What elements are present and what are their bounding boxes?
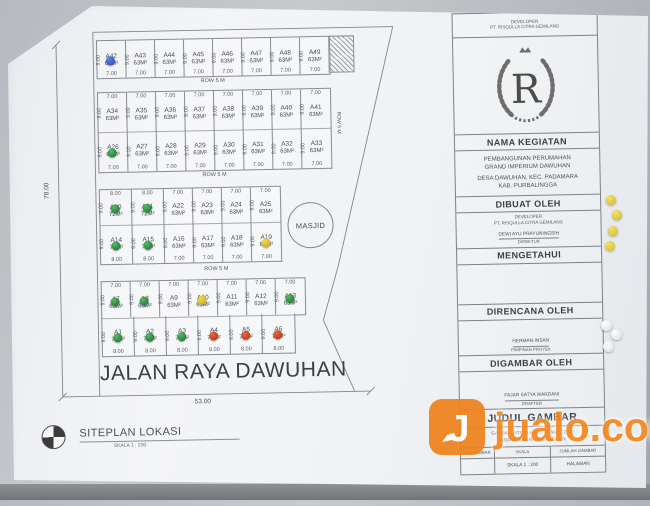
lot-marker-dot-yellow	[261, 238, 270, 247]
lot-a8: 9.007.00A863M²	[131, 281, 161, 318]
lot-id: A36	[156, 108, 184, 115]
legend-block: SITEPLAN LOKASI SKALA 1 : 200	[41, 422, 239, 451]
lot-area: 63M²	[244, 149, 272, 156]
lot-a41: 9.007.00A4163M²	[301, 89, 331, 129]
lot-a14: 9.008.00A1472M²	[100, 224, 133, 265]
lot-area: 63M²	[272, 113, 300, 120]
table-value-no-lembar	[461, 459, 495, 475]
lot-area: 63M²	[128, 151, 156, 158]
lot-width-dim: 8.00	[209, 347, 220, 353]
lot-id: A41	[301, 105, 330, 112]
lot-row-a42-a49: 9.007.00A4263M²9.007.00A4363M²9.007.00A4…	[96, 36, 331, 79]
lokasi-text: DESA DAWUHAN, KEC. PADAMARAKAB. PURBALIN…	[477, 173, 578, 191]
lot-width-dim: 7.00	[311, 161, 322, 167]
lot-width-dim: 7.00	[226, 281, 237, 287]
lot-width-dim: 7.00	[172, 190, 183, 196]
legend-title: SITEPLAN LOKASI	[79, 425, 239, 440]
lot-area: 63M²	[273, 148, 301, 155]
lot-marker-dot-green	[110, 297, 119, 306]
lot-a24: 9.007.00A2463M²	[222, 187, 252, 223]
lot-id: A34	[98, 109, 126, 116]
lot-area: 63M²	[193, 210, 221, 217]
lot-width-dim: 7.00	[253, 162, 264, 168]
lot-area: 63M²	[127, 116, 155, 123]
lot-width-dim: 7.00	[110, 283, 121, 289]
lot-width-dim: 8.00	[143, 256, 154, 262]
lot-a37: 9.007.00A3763M²	[185, 91, 215, 131]
lot-area: 63M²	[243, 113, 271, 120]
lot-a47: 9.007.00A4763M²	[242, 38, 272, 76]
lot-a28: 9.007.00A2863M²	[157, 130, 187, 172]
lot-a32: 9.007.00A3263M²	[273, 127, 303, 169]
lot-a5: 9.008.00A572M²	[230, 314, 263, 354]
lot-a10: 9.007.00A1063M²	[189, 280, 219, 317]
white-pin-icon	[601, 320, 612, 331]
lot-marker-dot-yellow	[197, 295, 206, 304]
lot-area: 63M²	[223, 242, 251, 249]
lot-a43: 9.007.00A4363M²	[126, 40, 156, 78]
lot-width-dim: 7.00	[137, 164, 148, 170]
lot-width-dim: 7.00	[193, 69, 204, 75]
lot-width-dim: 7.00	[108, 165, 119, 171]
lot-a9: 9.007.00A963M²	[160, 281, 190, 318]
lot-width-dim: 7.00	[230, 189, 241, 195]
lot-id: A38	[214, 107, 242, 114]
lot-id: A40	[272, 106, 300, 113]
lot-a30: 9.007.00A3063M²	[215, 128, 245, 170]
lot-area: 63M²	[194, 242, 222, 249]
lot-area: 63M²	[213, 58, 241, 65]
row-spacing-label-vertical: ROW 5 M	[335, 112, 341, 134]
lot-id: A46	[213, 51, 241, 58]
lot-row-a26-a33: 9.007.00A2663M²9.007.00A2763M²9.007.00A2…	[98, 127, 333, 173]
lot-marker-dot-green	[177, 332, 186, 341]
direncana-oleh-box: HERMAN INSAN PIMPINAN PROYEK	[458, 318, 603, 357]
table-value-skala: SKALA 1 : 200	[495, 458, 551, 474]
lot-a36: 9.007.00A3663M²	[156, 92, 186, 132]
lot-a12: 9.007.00A1263M²	[247, 279, 277, 316]
lot-a44: 9.007.00A4463M²	[155, 40, 185, 78]
lot-marker-dot-green	[145, 333, 154, 342]
white-pin-icon	[611, 329, 622, 340]
lot-row-a20-a25: 9.008.00A2072M²9.008.00A2172M²9.007.00A2…	[99, 186, 282, 226]
lot-width-dim: 8.00	[111, 257, 122, 263]
lot-id: A28	[157, 144, 185, 151]
lot-a31: 9.007.00A3163M²	[244, 128, 274, 170]
lot-a23: 9.007.00A2363M²	[193, 188, 223, 224]
lot-width-dim: 7.00	[166, 164, 177, 170]
lot-a11: 9.007.00A1163M²	[218, 279, 248, 316]
lot-a19: 9.007.00A1963M²	[251, 221, 281, 262]
lot-width-dim: 7.00	[107, 94, 118, 100]
yellow-pin-icon	[605, 241, 615, 251]
lot-a49: 9.007.00A4963M²	[300, 37, 330, 75]
lot-width-dim: 8.00	[177, 348, 188, 354]
lot-width-dim: 8.00	[241, 346, 252, 352]
kegiatan-text: PEMBANGUNAN PERUMAHANGRAND IMPERIUM DAWU…	[484, 154, 571, 172]
lot-a42: 9.007.00A4263M²	[97, 41, 127, 79]
lot-width-dim: 7.00	[174, 256, 185, 262]
lot-id: A9	[160, 296, 188, 303]
lot-id: A39	[243, 106, 271, 113]
lot-row-a14-a19: 9.008.00A1472M²9.008.00A1572M²9.007.00A1…	[99, 221, 282, 265]
lot-id: A27	[128, 144, 156, 151]
lot-id: A11	[218, 295, 246, 302]
lot-id: A23	[193, 203, 221, 210]
lot-width-dim: 7.00	[197, 281, 208, 287]
lot-width-dim: 7.00	[165, 93, 176, 99]
developer-company: PT. RISQULLA CITRA GEMILANG	[490, 24, 559, 30]
lot-area: 63M²	[165, 243, 193, 250]
lot-area: 63M²	[271, 57, 299, 64]
lot-marker-dot-green	[139, 296, 148, 305]
lot-width-dim: 8.00	[142, 190, 153, 196]
lot-width-dim: 7.00	[136, 93, 147, 99]
lot-width-dim: 7.00	[255, 280, 266, 286]
lot-a16: 9.007.00A1663M²	[164, 222, 194, 263]
yellow-pin-icon	[608, 226, 618, 236]
lot-a13: 9.007.00A1363M²	[276, 278, 306, 315]
lot-a33: 9.007.00A3363M²	[302, 127, 332, 169]
lot-a35: 9.007.00A3563M²	[127, 92, 157, 132]
lot-area: 63M²	[300, 56, 329, 63]
lot-width-dim: 7.00	[168, 282, 179, 288]
lot-a46: 9.007.00A4663M²	[213, 38, 243, 76]
lot-a17: 9.007.00A1763M²	[193, 222, 223, 263]
titleblock-developer-header: DEVELOPER PT. RISQULLA CITRA GEMILANG	[453, 12, 597, 39]
lot-a4: 9.008.00A472M²	[198, 315, 231, 355]
lot-id: A35	[127, 109, 155, 116]
lot-a27: 9.007.00A2763M²	[128, 130, 158, 172]
lot-id: A44	[155, 52, 183, 59]
lot-id: A18	[223, 235, 251, 242]
company-logo: R	[453, 36, 599, 136]
direncana-role: PIMPINAN PROYEK	[511, 346, 551, 352]
yellow-pin-icon	[606, 195, 616, 205]
watermark: J jualo.com	[428, 398, 650, 456]
table-value-jumlah-gambar: HALAMAN	[551, 457, 605, 473]
lot-width-dim: 7.00	[310, 90, 321, 96]
lot-area: 63M²	[301, 112, 330, 119]
lot-width-dim: 7.00	[201, 189, 212, 195]
lot-id: A22	[164, 203, 192, 210]
lot-id: A33	[302, 141, 331, 148]
lot-width-dim: 7.00	[164, 70, 175, 76]
dibuat-oleh-box: DEVELOPERPT. RISQULLA CITRA GEMILANG DEW…	[456, 211, 601, 250]
lot-width-dim: 7.00	[203, 255, 214, 261]
dibuat-small-text: DEVELOPERPT. RISQULLA CITRA GEMILANG	[494, 213, 563, 226]
lot-a7: 9.007.00A763M²	[102, 282, 132, 319]
lot-a2: 9.008.00A272M²	[134, 316, 167, 356]
lot-id: A31	[244, 142, 272, 149]
lot-a38: 9.007.00A3863M²	[214, 90, 244, 130]
lot-a1: 9.008.00A172M²	[102, 317, 135, 357]
lot-id: A37	[185, 107, 213, 114]
lot-area: 63M²	[184, 59, 212, 66]
lot-width-dim: 8.00	[145, 348, 156, 354]
yellow-pin-icon	[612, 210, 622, 220]
lot-area: 63M²	[155, 59, 183, 66]
lot-area: 63M²	[164, 210, 192, 217]
lot-id: A49	[300, 49, 329, 56]
lot-id: A48	[271, 50, 299, 57]
lot-a3: 9.008.00A372M²	[166, 315, 199, 355]
lot-width-dim: 7.00	[260, 188, 271, 194]
dibuat-role: DIREKTUR	[518, 239, 540, 245]
lot-area: 63M²	[222, 209, 250, 216]
lot-id: A17	[194, 235, 222, 242]
lot-area: 63M²	[214, 114, 242, 121]
lot-area: 63M²	[156, 115, 184, 122]
lot-area: 63M²	[98, 116, 126, 123]
lot-id: A45	[184, 52, 212, 59]
lot-width-dim: 7.00	[194, 92, 205, 98]
lot-id: A30	[215, 142, 243, 149]
lot-a15: 9.008.00A1572M²	[132, 223, 165, 264]
lot-width-dim: 7.00	[106, 71, 117, 77]
lot-width-dim: 7.00	[285, 279, 296, 285]
lot-a18: 9.007.00A1863M²	[222, 221, 252, 262]
lot-area: 63M²	[186, 150, 214, 157]
lot-area: 63M²	[126, 60, 154, 67]
lot-width-dim: 7.00	[280, 68, 291, 74]
lot-a39: 9.007.00A3963M²	[243, 90, 273, 130]
lot-a22: 9.007.00A2263M²	[164, 188, 194, 224]
lot-width-dim: 8.00	[273, 346, 284, 352]
lot-id: A25	[251, 201, 280, 208]
lot-width-dim: 8.00	[110, 191, 121, 197]
white-pin-icon	[603, 341, 614, 352]
lot-width-dim: 7.00	[195, 163, 206, 169]
lot-area: 63M²	[302, 148, 331, 155]
jualo-logo-icon: J	[428, 398, 486, 456]
lot-width-dim: 7.00	[224, 163, 235, 169]
lot-area: 63M²	[218, 302, 246, 309]
lot-a6: 9.008.00A672M²	[262, 314, 295, 354]
lot-width-dim: 7.00	[261, 254, 272, 260]
lot-row-a1-a6: 9.008.00A172M²9.008.00A272M²9.008.00A372…	[101, 313, 296, 357]
lot-a40: 9.007.00A4063M²	[272, 89, 302, 129]
mengetahui-box	[457, 262, 602, 305]
lot-width-dim: 8.00	[113, 349, 124, 355]
lot-a45: 9.007.00A4563M²	[184, 39, 214, 77]
dimension-height: 78.00	[43, 183, 50, 199]
lot-a29: 9.007.00A2963M²	[186, 129, 216, 171]
lot-width-dim: 7.00	[222, 69, 233, 75]
lot-area: 63M²	[242, 57, 270, 64]
lot-marker-dot-red	[273, 330, 282, 339]
lot-id: A16	[165, 236, 193, 243]
lot-a25: 9.007.00A2563M²	[251, 187, 281, 223]
lot-area: 63M²	[160, 303, 188, 310]
lot-a20: 9.008.00A2072M²	[100, 190, 133, 226]
section-marker-icon	[41, 425, 65, 449]
lot-width-dim: 7.00	[281, 91, 292, 97]
lot-id: A47	[242, 50, 270, 57]
lot-a34: 9.007.00A3463M²	[98, 93, 128, 133]
lot-a48: 9.007.00A4863M²	[271, 37, 301, 75]
lot-area: 63M²	[251, 208, 280, 215]
lot-width-dim: 7.00	[310, 67, 321, 73]
lot-id: A24	[222, 202, 250, 209]
lot-area: 63M²	[215, 149, 243, 156]
lot-marker-dot-green	[143, 240, 152, 249]
svg-text:J: J	[448, 408, 469, 450]
svg-text:R: R	[510, 67, 543, 114]
lot-area: 63M²	[247, 301, 275, 308]
lot-id: A12	[247, 294, 275, 301]
lot-a26: 9.007.00A2663M²	[99, 131, 129, 173]
lot-area: 63M²	[185, 114, 213, 121]
nama-kegiatan-content: PEMBANGUNAN PERUMAHANGRAND IMPERIUM DAWU…	[455, 149, 600, 198]
lot-width-dim: 7.00	[251, 68, 262, 74]
lot-width-dim: 7.00	[282, 162, 293, 168]
lot-id: A32	[273, 141, 301, 148]
watermark-text: jualo.com	[494, 404, 650, 451]
hatched-area	[328, 35, 355, 72]
lot-width-dim: 7.00	[232, 254, 243, 260]
lot-id: A29	[186, 143, 214, 150]
laurel-wreath-logo-icon: R	[488, 42, 564, 127]
lot-marker-dot-green	[142, 204, 151, 213]
lot-id: A43	[126, 53, 154, 60]
lot-width-dim: 7.00	[223, 92, 234, 98]
lot-width-dim: 7.00	[135, 70, 146, 76]
lot-width-dim: 7.00	[252, 91, 263, 97]
lot-width-dim: 7.00	[139, 282, 150, 288]
lot-a21: 9.008.00A2172M²	[132, 189, 165, 225]
lot-area: 63M²	[157, 151, 185, 158]
